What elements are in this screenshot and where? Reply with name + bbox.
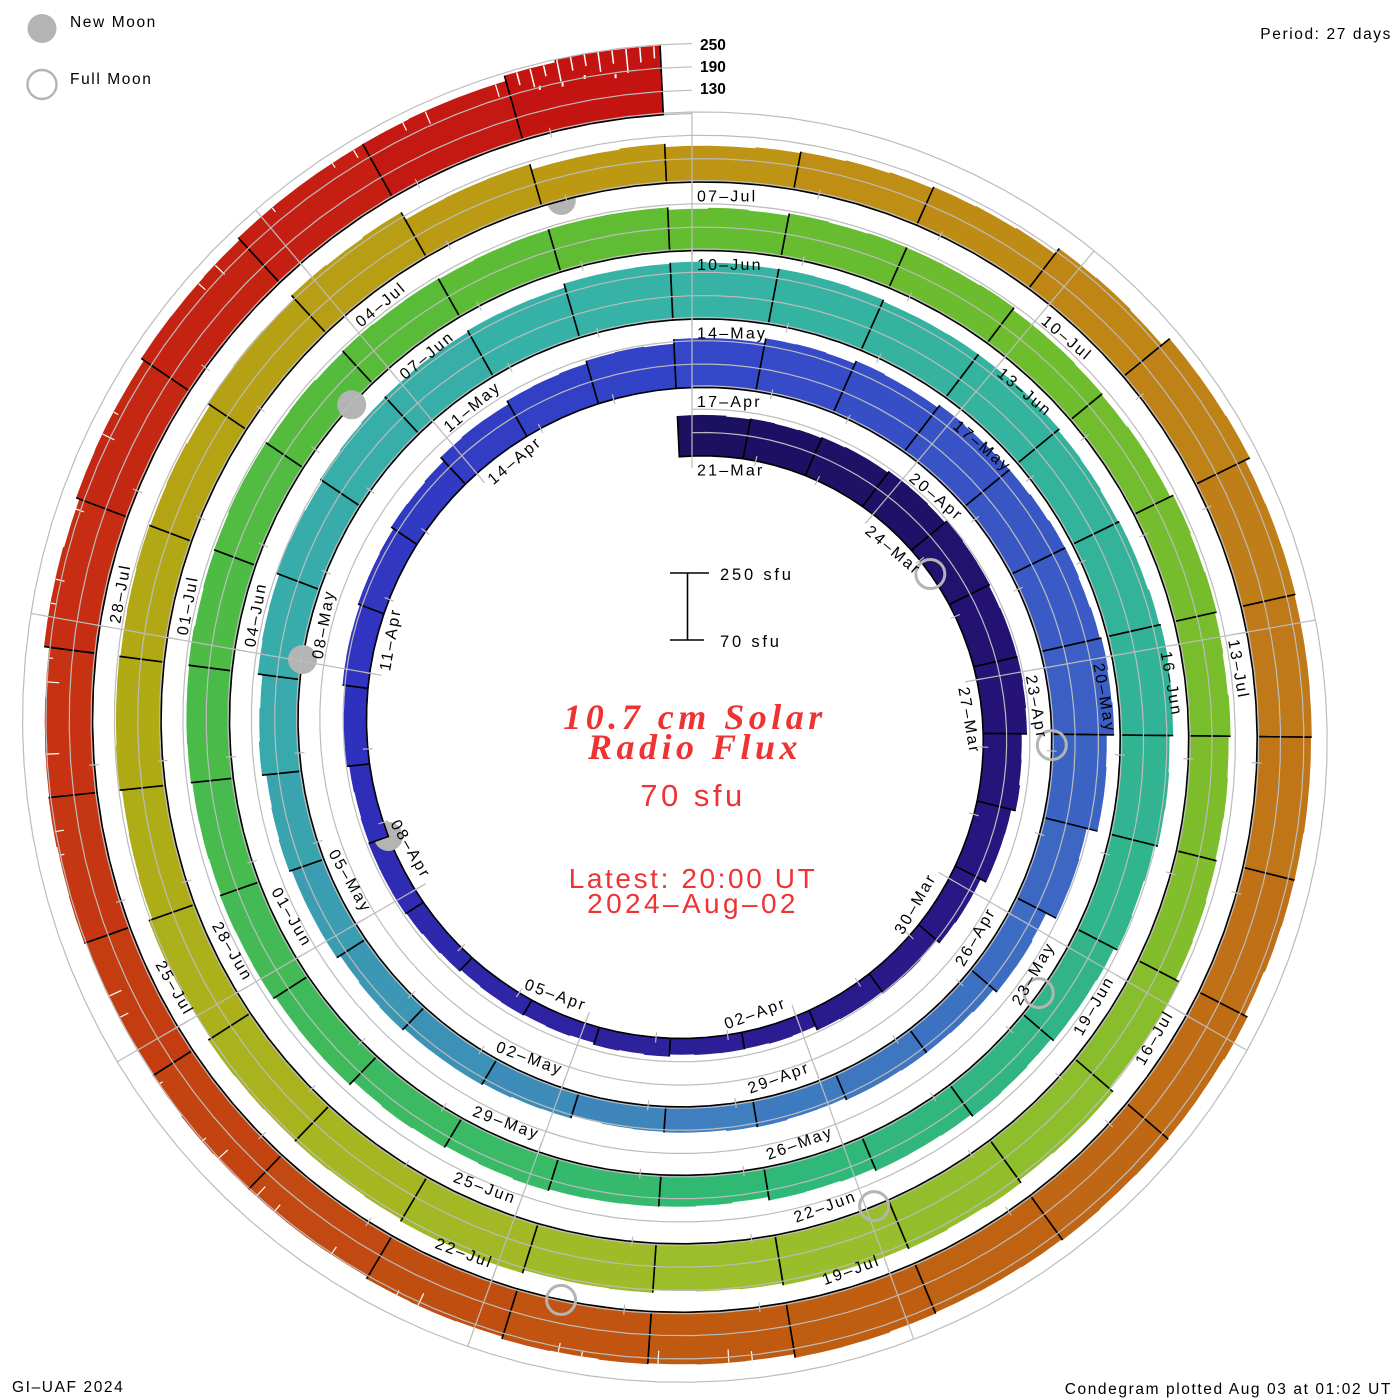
svg-text:17–Apr: 17–Apr [697,394,762,411]
svg-text:21–Mar: 21–Mar [697,463,764,480]
svg-text:Condegram plotted Aug 03 at 01: Condegram plotted Aug 03 at 01:02 UT [1065,1381,1392,1398]
svg-text:07–Jul: 07–Jul [697,189,757,206]
svg-text:New Moon: New Moon [70,14,157,31]
svg-text:70 sfu: 70 sfu [640,778,745,813]
svg-text:130: 130 [700,81,726,98]
svg-text:250: 250 [700,37,726,54]
svg-text:10–Jun: 10–Jun [697,257,763,274]
svg-text:Period: 27 days: Period: 27 days [1260,26,1392,43]
svg-text:14–May: 14–May [697,326,767,343]
svg-text:Radio Flux: Radio Flux [587,727,802,767]
svg-text:Full Moon: Full Moon [70,71,152,88]
svg-text:190: 190 [700,59,726,76]
svg-text:2024–Aug–02: 2024–Aug–02 [587,888,799,919]
svg-text:250 sfu: 250 sfu [720,566,794,584]
svg-text:GI–UAF 2024: GI–UAF 2024 [12,1379,124,1396]
svg-text:70 sfu: 70 sfu [720,633,782,651]
